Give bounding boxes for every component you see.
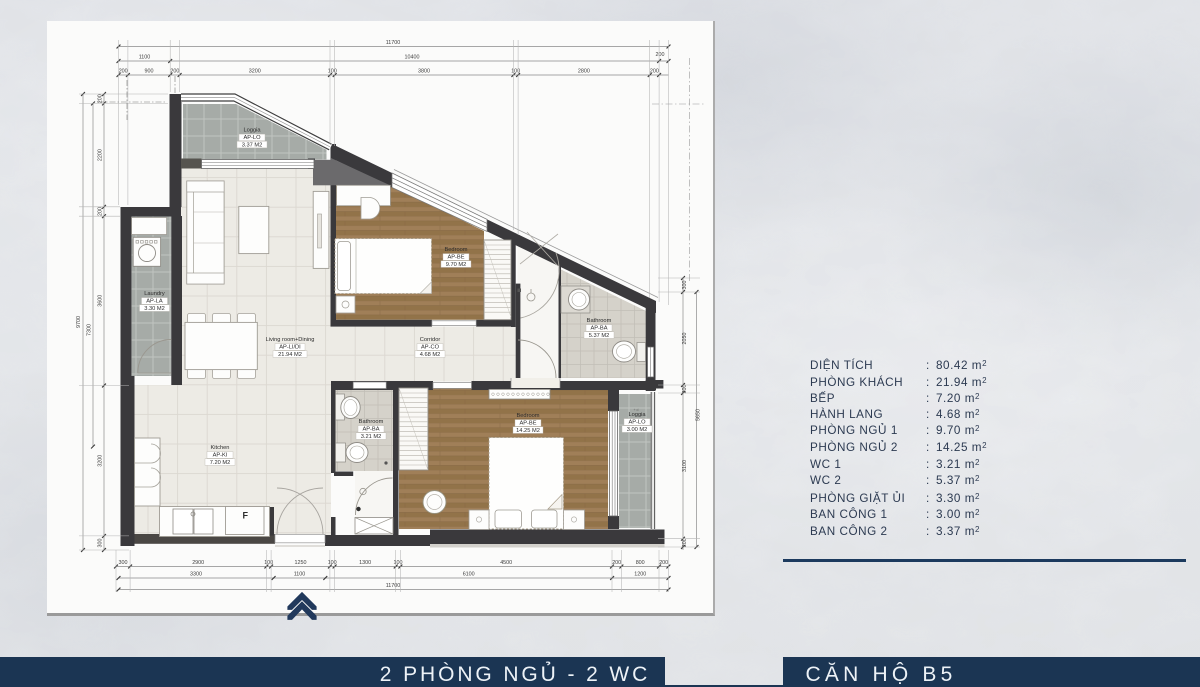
svg-text:6100: 6100 (463, 572, 475, 578)
svg-text:Bedroom: Bedroom (516, 413, 539, 419)
svg-text:Laundry: Laundry (144, 291, 165, 297)
svg-text:100: 100 (394, 560, 403, 566)
svg-text:3600: 3600 (98, 295, 104, 307)
svg-text:AP-CO: AP-CO (421, 345, 440, 351)
svg-text:10400: 10400 (405, 55, 420, 61)
svg-text:1250: 1250 (295, 560, 307, 566)
svg-text:3.37 M2: 3.37 M2 (242, 142, 263, 148)
svg-text:5.37 M2: 5.37 M2 (589, 333, 610, 339)
svg-text:7.20 M2: 7.20 M2 (210, 460, 231, 466)
svg-text:Bathroom: Bathroom (587, 318, 612, 324)
svg-text:2900: 2900 (192, 560, 204, 566)
svg-text:300: 300 (682, 281, 688, 290)
svg-text:5650: 5650 (696, 409, 702, 421)
svg-text:AP-BA: AP-BA (590, 326, 607, 332)
svg-text:1100: 1100 (139, 55, 151, 61)
svg-text:14.25 M2: 14.25 M2 (516, 428, 540, 434)
svg-text:Living room+Dining: Living room+Dining (266, 337, 315, 343)
svg-text:200: 200 (170, 69, 179, 75)
svg-text:11700: 11700 (386, 583, 401, 589)
svg-text:4.68 M2: 4.68 M2 (420, 352, 441, 358)
svg-text:800: 800 (636, 560, 645, 566)
svg-text:AP-LO: AP-LO (243, 135, 261, 141)
svg-text:3.21 M2: 3.21 M2 (361, 434, 382, 440)
svg-text:3200: 3200 (98, 455, 104, 467)
svg-text:200: 200 (656, 52, 665, 58)
svg-text:1300: 1300 (359, 560, 371, 566)
svg-text:21.94 M2: 21.94 M2 (278, 352, 302, 358)
svg-text:AP-BE: AP-BE (519, 421, 536, 427)
svg-text:Bedroom: Bedroom (444, 247, 467, 253)
svg-text:AP-BA: AP-BA (362, 427, 379, 433)
svg-text:Loggia: Loggia (243, 128, 261, 134)
svg-text:300: 300 (119, 560, 128, 566)
svg-text:3200: 3200 (249, 69, 261, 75)
svg-text:900: 900 (145, 69, 154, 75)
svg-text:100: 100 (264, 560, 273, 566)
svg-text:AP-LO: AP-LO (628, 420, 646, 426)
svg-text:3.30 M2: 3.30 M2 (144, 306, 165, 312)
svg-text:200: 200 (98, 207, 104, 216)
svg-text:AP-BE: AP-BE (447, 255, 464, 261)
svg-text:2200: 2200 (98, 149, 104, 161)
svg-text:100: 100 (328, 560, 337, 566)
svg-text:3300: 3300 (190, 572, 202, 578)
svg-text:AP-LI/DI: AP-LI/DI (279, 345, 301, 351)
svg-text:9.70 M2: 9.70 M2 (446, 262, 467, 268)
svg-text:2800: 2800 (578, 69, 590, 75)
svg-text:AP-LA: AP-LA (146, 299, 163, 305)
svg-text:2050: 2050 (682, 333, 688, 345)
svg-text:1100: 1100 (294, 572, 306, 578)
svg-text:200: 200 (682, 538, 688, 547)
svg-text:200: 200 (650, 69, 659, 75)
svg-text:3100: 3100 (682, 460, 688, 472)
svg-text:7300: 7300 (87, 324, 93, 336)
svg-text:Loggia: Loggia (628, 412, 646, 418)
svg-text:4500: 4500 (500, 560, 512, 566)
svg-text:F: F (243, 511, 249, 521)
svg-text:Bathroom: Bathroom (359, 419, 384, 425)
svg-text:200: 200 (659, 560, 668, 566)
svg-text:AP-KI: AP-KI (213, 453, 228, 459)
svg-text:1200: 1200 (634, 572, 646, 578)
svg-text:Corridor: Corridor (420, 337, 441, 343)
svg-text:3.00 M2: 3.00 M2 (627, 427, 648, 433)
svg-text:200: 200 (612, 560, 621, 566)
svg-text:100: 100 (511, 69, 520, 75)
svg-text:300: 300 (98, 539, 104, 548)
svg-text:Kitchen: Kitchen (211, 445, 230, 451)
svg-text:100: 100 (328, 69, 337, 75)
svg-text:11700: 11700 (386, 40, 401, 46)
svg-text:9700: 9700 (76, 316, 82, 328)
svg-text:3800: 3800 (418, 69, 430, 75)
svg-text:200: 200 (119, 69, 128, 75)
svg-text:200: 200 (682, 385, 688, 394)
